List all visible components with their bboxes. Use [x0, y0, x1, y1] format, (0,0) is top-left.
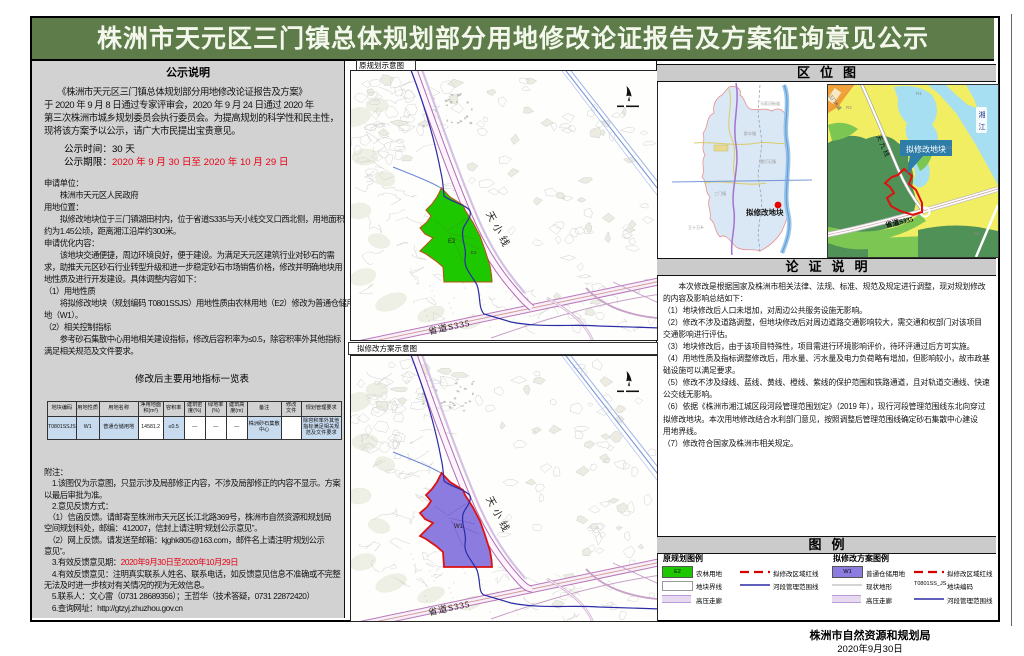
- svg-text:拟修改地块: 拟修改地块: [746, 207, 784, 217]
- svg-text:三门镇: 三门镇: [714, 190, 726, 196]
- svg-text:拟修改地块: 拟修改地块: [906, 144, 946, 154]
- svg-text:R1: R1: [916, 91, 922, 96]
- svg-text:江: 江: [979, 123, 986, 131]
- svg-text:雷打石镇: 雷打石镇: [760, 158, 776, 164]
- svg-text:W1: W1: [454, 524, 464, 530]
- svg-text:R2: R2: [946, 145, 952, 150]
- svg-text:群丰镇: 群丰镇: [744, 130, 756, 136]
- svg-text:R2: R2: [974, 231, 980, 236]
- svg-text:湘: 湘: [979, 110, 986, 119]
- svg-text:E2: E2: [448, 239, 456, 245]
- svg-text:R2: R2: [846, 105, 852, 110]
- svg-text:马家河街道: 马家河街道: [760, 100, 780, 106]
- svg-text:王十万乡: 王十万乡: [688, 224, 704, 230]
- svg-text:E3: E3: [471, 250, 477, 255]
